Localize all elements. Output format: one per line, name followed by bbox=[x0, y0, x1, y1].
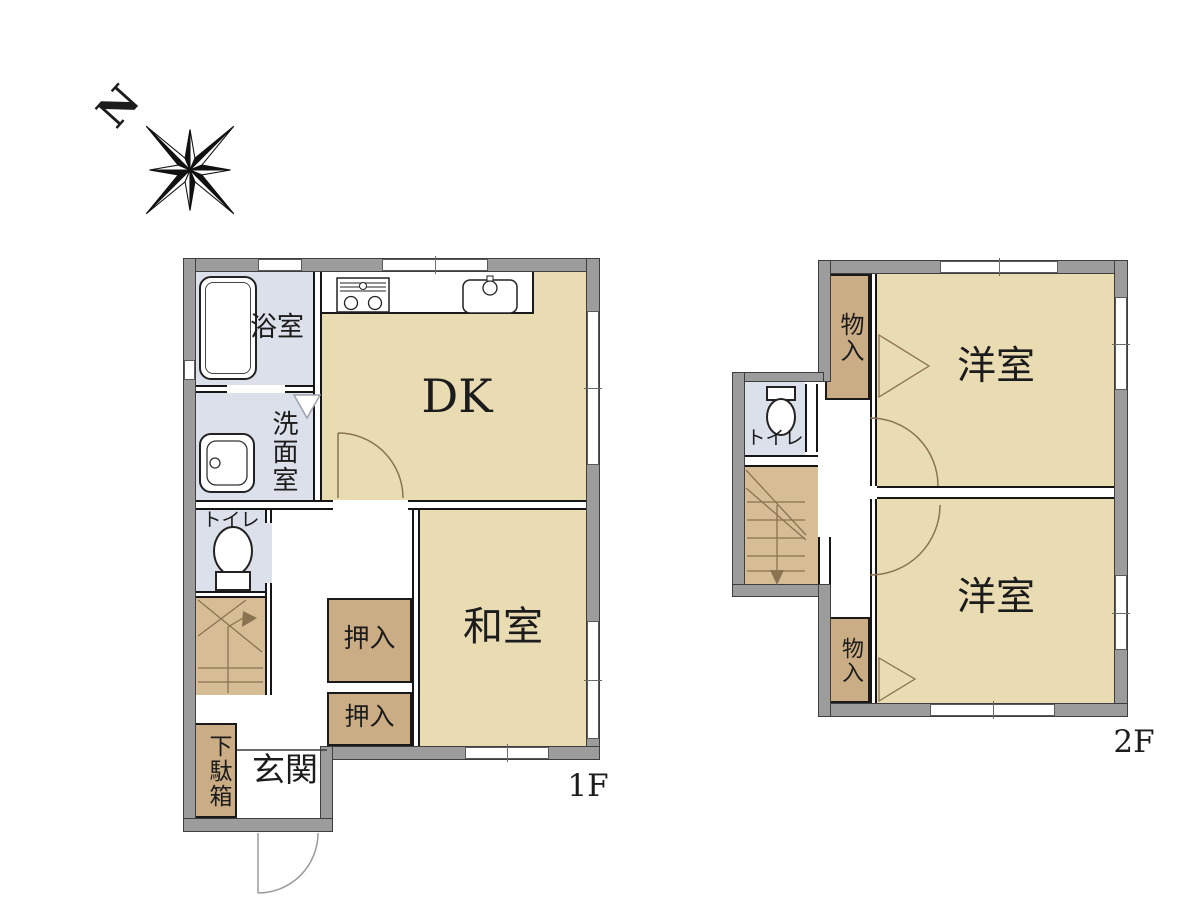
room-stairs-2f bbox=[745, 467, 818, 584]
window-1f-right-washitsu bbox=[587, 621, 599, 739]
wall-bath-wash-left bbox=[196, 385, 227, 393]
label-toilet-2f: トイレ bbox=[742, 429, 808, 449]
wall-washitsu-left bbox=[412, 510, 420, 746]
label-western-upper: 洋室 bbox=[944, 347, 1048, 388]
wall-2f-prot-bottom bbox=[732, 584, 831, 597]
label-toilet-1f: トイレ bbox=[198, 511, 264, 531]
label-bathroom: 浴室 bbox=[232, 314, 322, 342]
wall-2f-prot-top bbox=[732, 372, 824, 382]
label-washitsu: 和室 bbox=[438, 606, 568, 648]
window-2f-bottom bbox=[930, 704, 1055, 716]
door-arc-entrance bbox=[258, 833, 318, 893]
window-2f-right-down bbox=[1115, 575, 1127, 650]
wall-bath-wash-right bbox=[285, 385, 313, 393]
wall-2f-left-lower bbox=[818, 584, 831, 717]
wall-1f-bottom-right bbox=[320, 746, 600, 760]
window-1f-bottom bbox=[465, 747, 549, 759]
wall-1f-bottom-left bbox=[183, 818, 333, 832]
window-2f-top bbox=[940, 261, 1058, 273]
window-1f-top-small bbox=[258, 259, 302, 271]
wall-western-left-up bbox=[870, 274, 877, 486]
window-1f-right-dk bbox=[587, 311, 599, 465]
label-monoire-lower: 物入 bbox=[834, 624, 862, 698]
floor-plan-canvas: N bbox=[0, 0, 1200, 915]
kitchen-counter bbox=[322, 272, 534, 314]
label-genkan: 玄関 bbox=[238, 753, 332, 788]
wall-2f-prot-left bbox=[732, 372, 745, 597]
wall-dk-washitsu bbox=[408, 500, 586, 510]
label-washroom: 洗面室 bbox=[256, 400, 296, 504]
wall-toilet2-bottom bbox=[745, 455, 818, 467]
north-label: N bbox=[86, 74, 154, 142]
wall-western-left-dn bbox=[870, 499, 877, 703]
wall-dk-corner bbox=[313, 500, 333, 510]
wall-toilet-bottom bbox=[196, 591, 272, 598]
wall-1f-left bbox=[183, 258, 196, 832]
label-monoire-upper: 物入 bbox=[834, 290, 862, 386]
wall-western-divider bbox=[877, 486, 1114, 499]
label-getabako: 下駄箱 bbox=[196, 730, 230, 812]
label-dk: DK bbox=[382, 372, 532, 420]
wall-dk-left bbox=[313, 272, 322, 500]
wall-2f-left-upper bbox=[818, 260, 831, 382]
wall-hall-left-bottom bbox=[265, 583, 272, 695]
window-1f-left bbox=[184, 360, 195, 380]
door-stairs-2f bbox=[818, 537, 831, 584]
window-1f-top-wide bbox=[382, 259, 488, 271]
window-2f-right-up bbox=[1115, 297, 1127, 390]
compass-rose-icon bbox=[126, 106, 254, 234]
wall-hall-left-top bbox=[265, 510, 272, 523]
label-western-lower: 洋室 bbox=[944, 578, 1048, 619]
label-oshiire-lower: 押入 bbox=[329, 704, 410, 730]
label-floor-2f: 2F bbox=[1094, 726, 1174, 759]
label-floor-1f: 1F bbox=[548, 770, 628, 803]
label-oshiire-upper: 押入 bbox=[329, 626, 410, 653]
room-stairs-1f bbox=[196, 598, 265, 695]
